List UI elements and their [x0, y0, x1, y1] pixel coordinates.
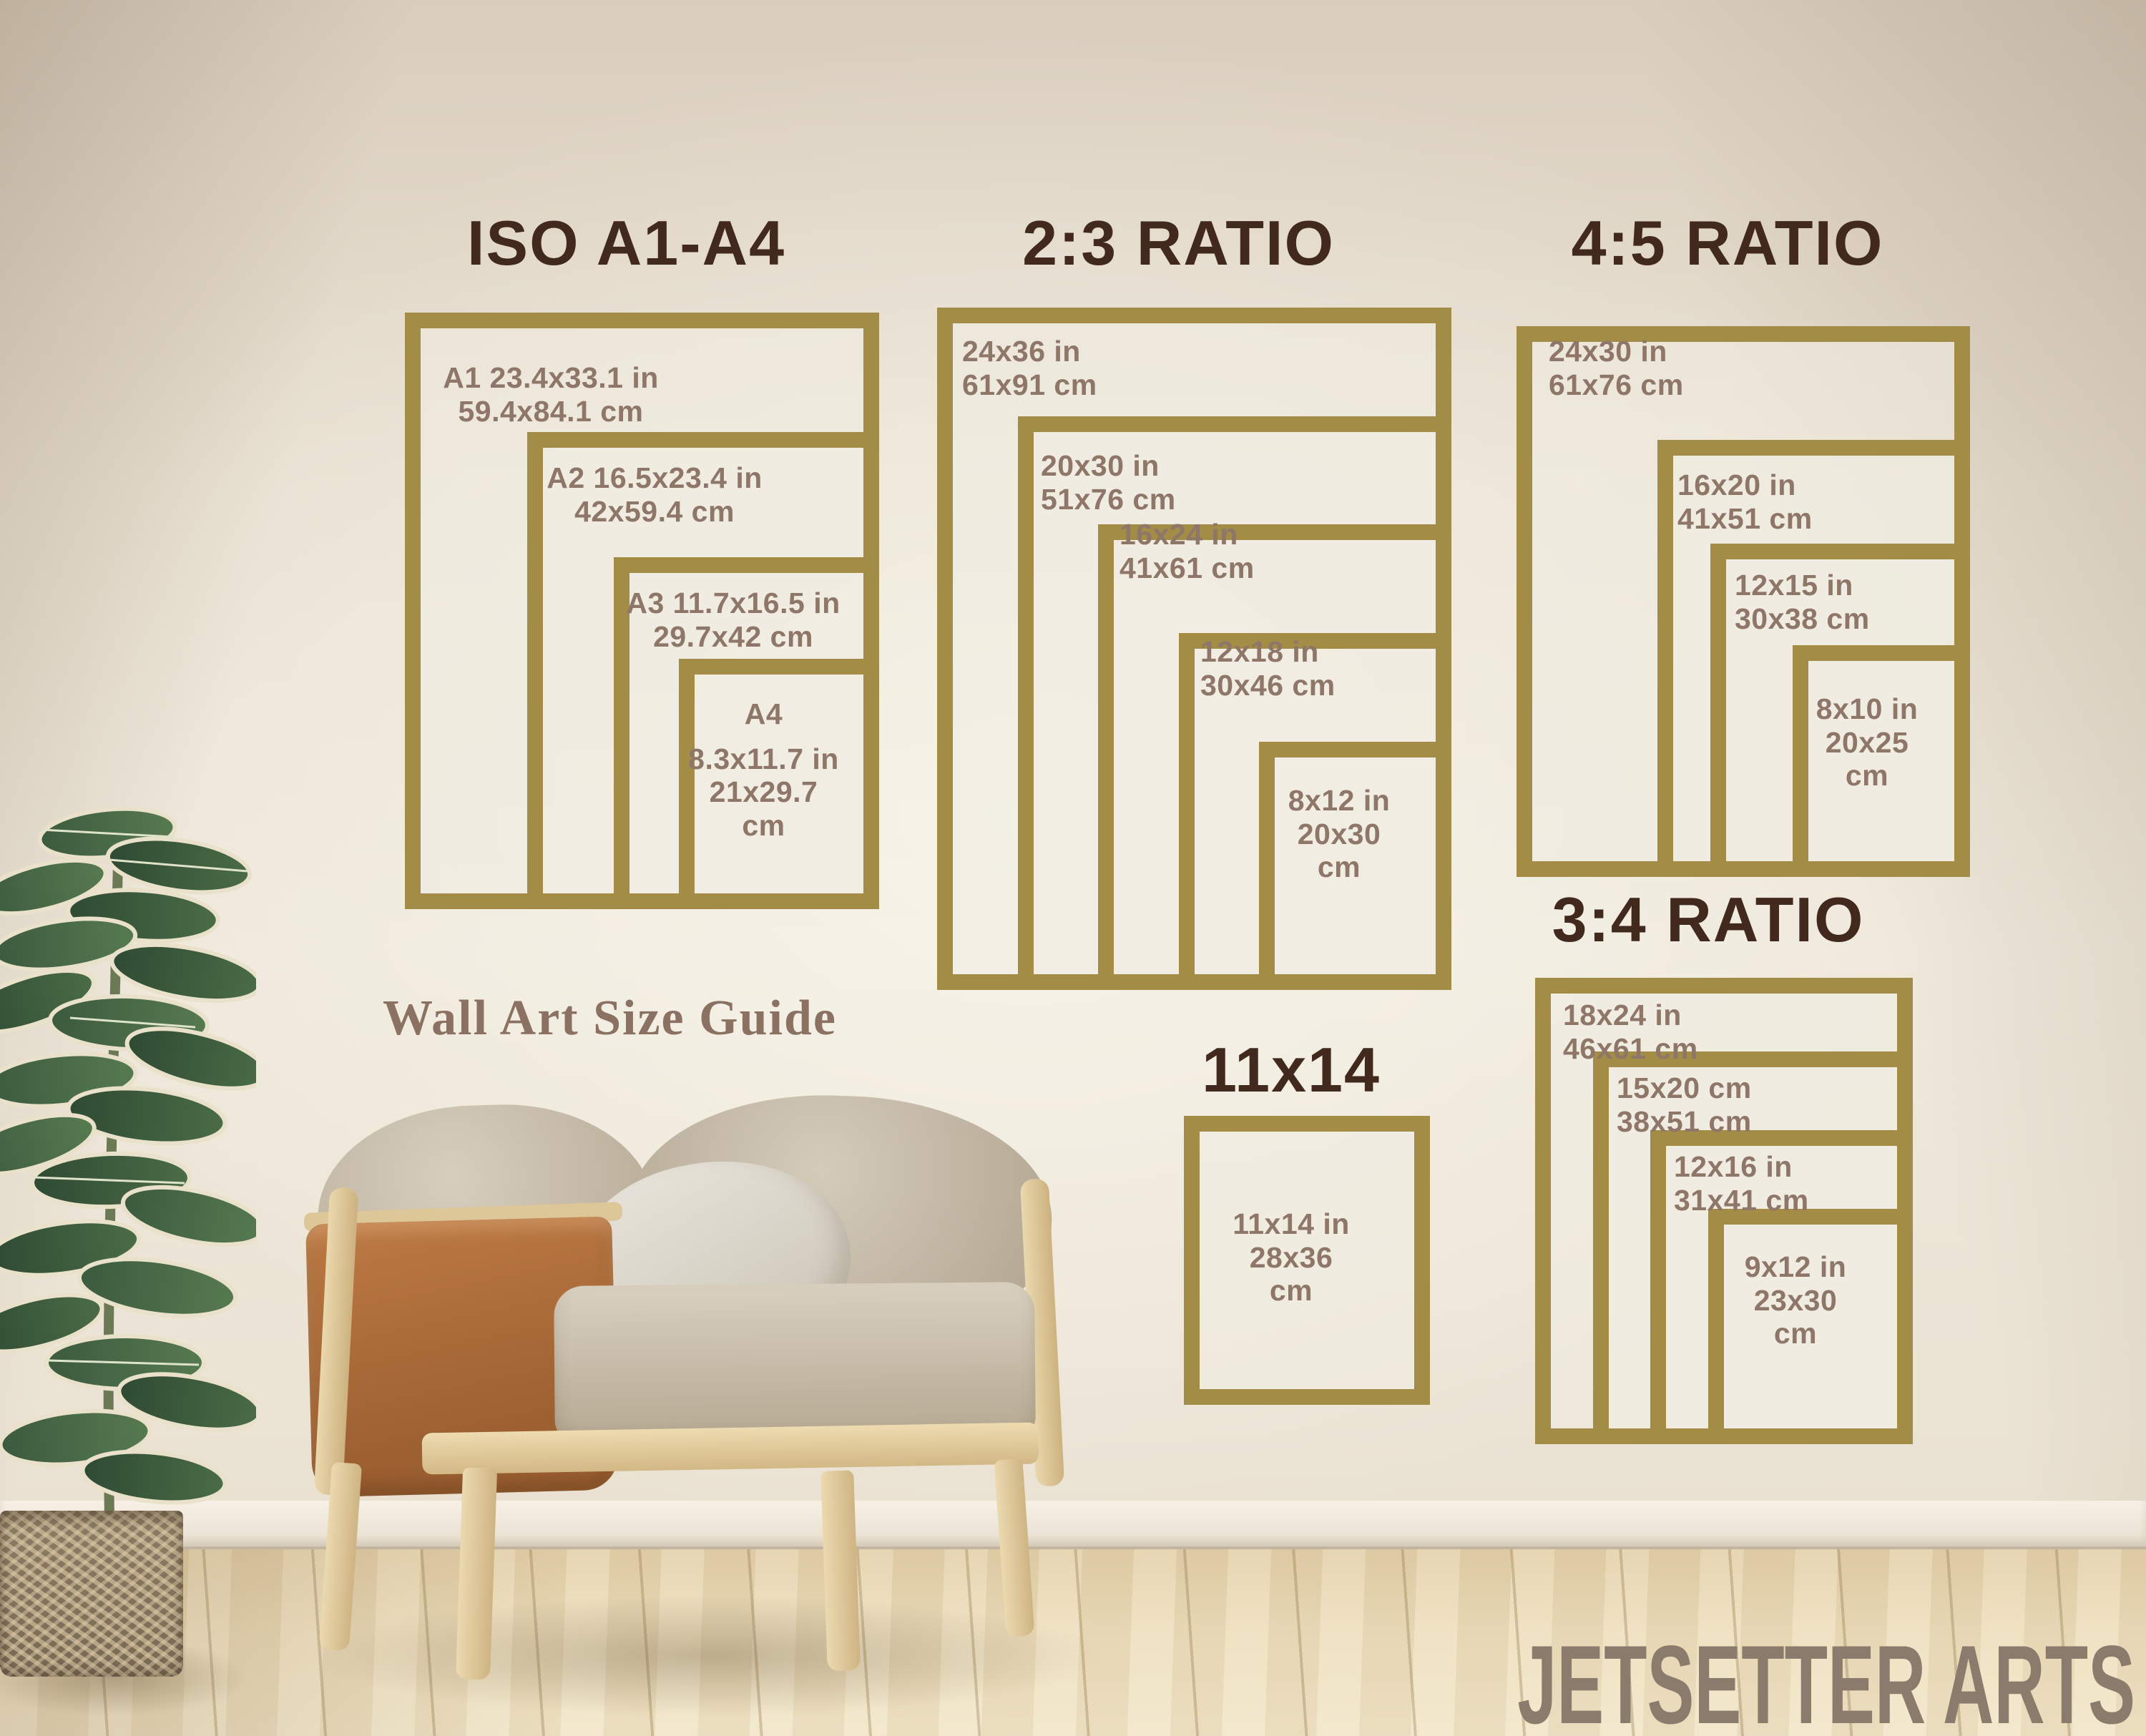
size-label-12x15: 12x15 in 30x38 cm [1735, 569, 1971, 635]
section-title-3-4: 3:4 RATIO [1535, 888, 1881, 951]
plant-pot [0, 1511, 183, 1677]
section-title-iso: ISO A1-A4 [405, 212, 848, 275]
room-scene: ISO A1-A4 A1 23.4x33.1 in 59.4x84.1 cm A… [0, 0, 2146, 1736]
size-label-a3: A3 11.7x16.5 in 29.7x42 cm [622, 587, 844, 653]
size-label-16x24: 16x24 in 41x61 cm [1119, 518, 1356, 584]
wall-caption: Wall Art Size Guide [383, 990, 955, 1047]
brand-logo-text: JETSETTER ARTS [1506, 1622, 2135, 1736]
chair-seat-cushion [554, 1282, 1036, 1442]
size-label-8x10: 8x10 in 20x25 cm [1806, 692, 1928, 793]
size-label-18x24: 18x24 in 46x61 cm [1563, 999, 1792, 1065]
size-label-15x20: 15x20 cm 38x51 cm [1617, 1071, 1853, 1138]
chair-shadow [308, 1595, 1109, 1717]
section-title-4-5: 4:5 RATIO [1517, 212, 1939, 275]
section-title-2-3: 2:3 RATIO [937, 212, 1420, 275]
size-label-16x20: 16x20 in 41x51 cm [1677, 469, 1914, 535]
baseboard [0, 1501, 2146, 1549]
size-label-a1: A1 23.4x33.1 in 59.4x84.1 cm [429, 361, 672, 428]
section-title-11x14: 11x14 [1184, 1039, 1398, 1102]
chair-leg-front-right [820, 1470, 861, 1671]
size-label-11x14: 11x14 in 28x36 cm [1209, 1207, 1373, 1308]
size-label-24x30: 24x30 in 61x76 cm [1549, 335, 1785, 401]
size-label-a2: A2 16.5x23.4 in 42x59.4 cm [533, 461, 776, 528]
size-label-8x12: 8x12 in 20x30 cm [1275, 784, 1403, 884]
size-label-9x12: 9x12 in 23x30 cm [1720, 1250, 1871, 1350]
size-label-20x30: 20x30 in 51x76 cm [1041, 449, 1277, 516]
size-label-12x18: 12x18 in 30x46 cm [1200, 635, 1436, 702]
size-label-a4: A4 8.3x11.7 in 21x29.7 cm [683, 697, 844, 843]
size-label-24x36: 24x36 in 61x91 cm [962, 335, 1198, 401]
size-label-12x16: 12x16 in 31x41 cm [1674, 1150, 1910, 1217]
